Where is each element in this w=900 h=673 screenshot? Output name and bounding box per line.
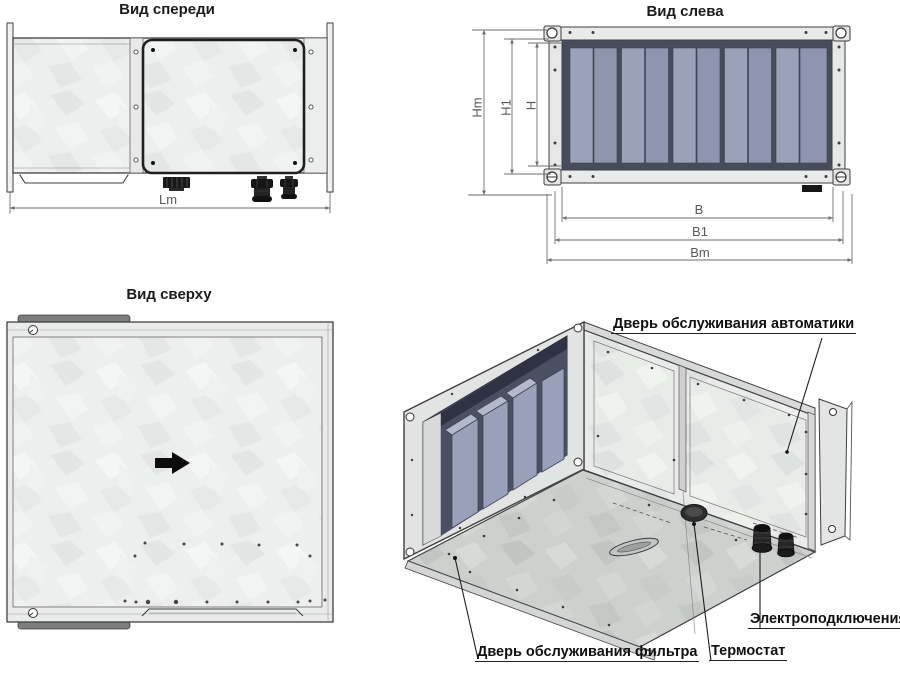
iso-cable-gland-1: [752, 524, 772, 553]
top-panel: [13, 337, 322, 607]
front-cable-gland-small: [280, 176, 298, 199]
thermostat-knob: [681, 505, 707, 522]
callout-automation-door: Дверь обслуживания автоматики: [611, 316, 856, 334]
dim-label-hm: Hm: [470, 88, 485, 128]
dim-label-lm: Lm: [148, 192, 188, 207]
top-view-drawing: [7, 315, 333, 629]
dim-label-h1: H1: [499, 88, 514, 128]
front-access-door: [143, 40, 304, 173]
front-thermostat-knob: [163, 177, 190, 191]
dim-label-bm: Bm: [680, 245, 720, 260]
callout-filter-door: Дверь обслуживания фильтра: [475, 644, 699, 662]
filter-slats: [570, 48, 827, 163]
technical-drawing-canvas: [0, 0, 900, 673]
front-cable-gland-large: [251, 176, 273, 202]
front-right-flange: [327, 23, 333, 192]
iso-outlet-flange: [819, 399, 852, 545]
callout-thermostat: Термостат: [709, 643, 787, 661]
left-top-flange: [560, 27, 833, 40]
front-left-flange: [7, 23, 13, 192]
left-view-drawing: [468, 26, 852, 264]
dim-label-b: B: [679, 202, 719, 217]
callout-electrical: Электроподключения: [748, 611, 900, 629]
recessed-handle: [20, 175, 128, 183]
left-bottom-flange: [560, 170, 833, 183]
front-view-title: Вид спереди: [92, 1, 242, 18]
front-view-drawing: [7, 23, 333, 213]
left-view-title: Вид слева: [610, 3, 760, 20]
left-view-knob: [802, 185, 822, 192]
iso-cable-gland-2: [778, 533, 795, 558]
dim-label-b1: B1: [680, 224, 720, 239]
drawing-sheet: Вид спереди Вид слева Вид сверху Lm Hm H…: [0, 0, 900, 673]
top-view-title: Вид сверху: [94, 286, 244, 303]
dim-label-h: H: [524, 86, 539, 126]
